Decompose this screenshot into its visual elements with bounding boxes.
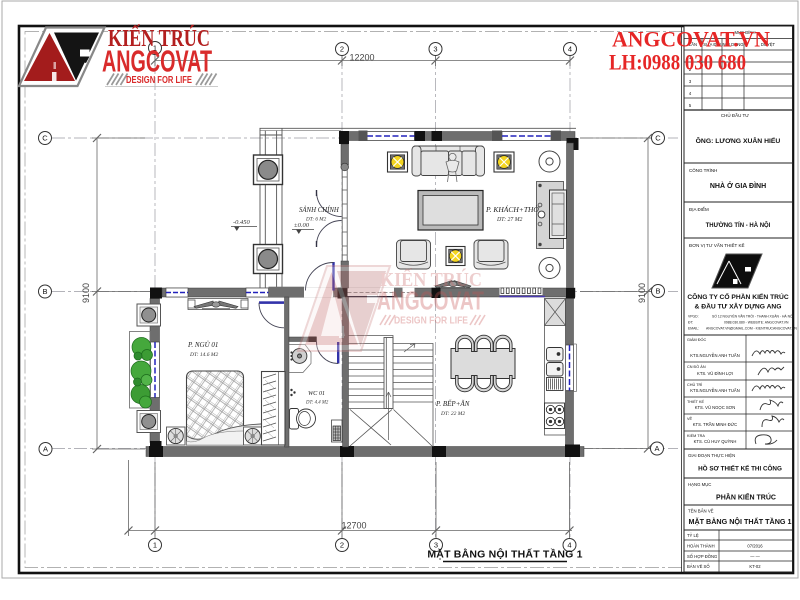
svg-text:MẶT BẰNG NỘI THẤT TẦNG 1: MẶT BẰNG NỘI THẤT TẦNG 1 (427, 548, 582, 561)
svg-text:B: B (42, 287, 47, 296)
svg-text:07/2016: 07/2016 (747, 544, 763, 549)
svg-text:SỐ 12 NGUYỄN VĂN TRỖI - THANH: SỐ 12 NGUYỄN VĂN TRỖI - THANH XUÂN - HÀ … (712, 314, 794, 319)
svg-text:3: 3 (433, 45, 437, 54)
svg-text:THIẾT KẾ: THIẾT KẾ (687, 399, 704, 404)
svg-text:GIAI ĐOẠN THỰC HIỆN: GIAI ĐOẠN THỰC HIỆN (688, 453, 735, 458)
svg-text:ANGCOVAT.VN@GMAIL.COM - KIENTR: ANGCOVAT.VN@GMAIL.COM - KIENTRUCANGCOVAT… (706, 327, 797, 331)
svg-text:KTS. VŨ ĐÌNH LỢI: KTS. VŨ ĐÌNH LỢI (697, 371, 733, 376)
svg-text:DT: 14.6 M2: DT: 14.6 M2 (189, 351, 219, 358)
svg-text:-0.450: -0.450 (233, 219, 251, 226)
svg-text:ĐT:: ĐT: (688, 321, 693, 325)
svg-text:9100: 9100 (81, 283, 91, 303)
svg-text:CHỦ ĐẦU TƯ: CHỦ ĐẦU TƯ (721, 112, 749, 118)
svg-text:NHÀ Ở GIA ĐÌNH: NHÀ Ở GIA ĐÌNH (710, 181, 766, 190)
svg-text:WC 01: WC 01 (308, 390, 325, 397)
svg-text:CN ĐỒ ÁN: CN ĐỒ ÁN (687, 364, 706, 369)
svg-text:KT-02: KT-02 (749, 564, 761, 569)
svg-text:12200: 12200 (349, 53, 374, 63)
svg-text:2: 2 (340, 45, 344, 54)
svg-text:EMAIL:: EMAIL: (688, 327, 699, 331)
svg-text:DESIGN FOR LIFE: DESIGN FOR LIFE (394, 316, 468, 327)
svg-text:9100: 9100 (637, 283, 647, 303)
svg-text:KTS. TRẦN MINH ĐỨC: KTS. TRẦN MINH ĐỨC (693, 422, 737, 427)
svg-text:BẢN VẼ SỐ: BẢN VẼ SỐ (687, 564, 710, 569)
svg-text:DT: 27 M2: DT: 27 M2 (496, 217, 523, 223)
svg-text:THƯỜNG TÍN - HÀ NỘI: THƯỜNG TÍN - HÀ NỘI (706, 221, 771, 229)
svg-text:KTS. VŨ NGỌC SƠN: KTS. VŨ NGỌC SƠN (695, 405, 736, 410)
svg-text:ANGCOVAT.VN: ANGCOVAT.VN (612, 27, 770, 52)
svg-text:A: A (654, 444, 659, 453)
svg-text:A: A (43, 445, 48, 454)
svg-text:KTS.NGUYỄN ANH TUẤN: KTS.NGUYỄN ANH TUẤN (690, 353, 739, 358)
svg-text:P. NGỦ 01: P. NGỦ 01 (187, 341, 218, 349)
svg-text:GIÁM ĐỐC: GIÁM ĐỐC (687, 337, 706, 342)
svg-text:P. KHÁCH+THỜ: P. KHÁCH+THỜ (485, 204, 540, 214)
svg-text:0988.030.680 - WEBSITE: ANGCOV: 0988.030.680 - WEBSITE: ANGCOVAT.VN (724, 321, 789, 325)
svg-text:KIỂM TRA: KIỂM TRA (687, 433, 705, 438)
svg-text:TÊN BẢN VẼ: TÊN BẢN VẼ (688, 509, 714, 514)
svg-text:ĐỊA ĐIỂM: ĐỊA ĐIỂM (689, 206, 709, 212)
svg-text:C: C (42, 134, 48, 143)
svg-text:CHỦ TRÌ: CHỦ TRÌ (687, 382, 702, 387)
svg-text:LH:0988 030 680: LH:0988 030 680 (609, 50, 746, 75)
svg-text:ĐƠN VỊ TƯ VẤN THIẾT KẾ: ĐƠN VỊ TƯ VẤN THIẾT KẾ (689, 242, 744, 248)
svg-text:1: 1 (153, 541, 157, 550)
svg-text:SẢNH CHÍNH: SẢNH CHÍNH (299, 206, 340, 214)
svg-text:CÔNG TRÌNH: CÔNG TRÌNH (689, 167, 717, 173)
svg-text:2: 2 (340, 541, 344, 550)
svg-text:12700: 12700 (341, 521, 366, 531)
svg-text:DESIGN FOR LIFE: DESIGN FOR LIFE (126, 74, 192, 86)
svg-text:VẼ: VẼ (687, 416, 693, 421)
svg-text:VPGD:: VPGD: (688, 315, 699, 319)
svg-text:KTS. CÙ HUY QUỲNH: KTS. CÙ HUY QUỲNH (694, 439, 737, 444)
svg-text:C: C (655, 134, 661, 143)
svg-text:TỶ LỆ: TỶ LỆ (687, 533, 699, 538)
svg-text:SỐ HỢP ĐỒNG: SỐ HỢP ĐỒNG (687, 554, 717, 559)
svg-text:HẠNG MỤC: HẠNG MỤC (688, 482, 711, 487)
svg-text:— —: — — (750, 554, 760, 559)
svg-text:DT: 4.4 M2: DT: 4.4 M2 (305, 401, 329, 406)
svg-text:4: 4 (568, 45, 572, 54)
svg-text:MẶT BẰNG NỘI THẤT TẦNG 1: MẶT BẰNG NỘI THẤT TẦNG 1 (688, 516, 791, 526)
svg-text:DT: 22 M2: DT: 22 M2 (440, 411, 465, 417)
svg-text:KTS.NGUYỄN ANH TUẤN: KTS.NGUYỄN ANH TUẤN (690, 388, 739, 393)
svg-text:HOÀN THÀNH: HOÀN THÀNH (687, 544, 715, 549)
svg-text:B: B (655, 287, 660, 296)
svg-text:ANGCOVAT: ANGCOVAT (377, 286, 484, 316)
svg-text:DT: 6 M2: DT: 6 M2 (305, 217, 327, 223)
svg-text:P. BẾP+ĂN: P. BẾP+ĂN (435, 400, 470, 408)
svg-text:±0.00: ±0.00 (294, 222, 310, 229)
